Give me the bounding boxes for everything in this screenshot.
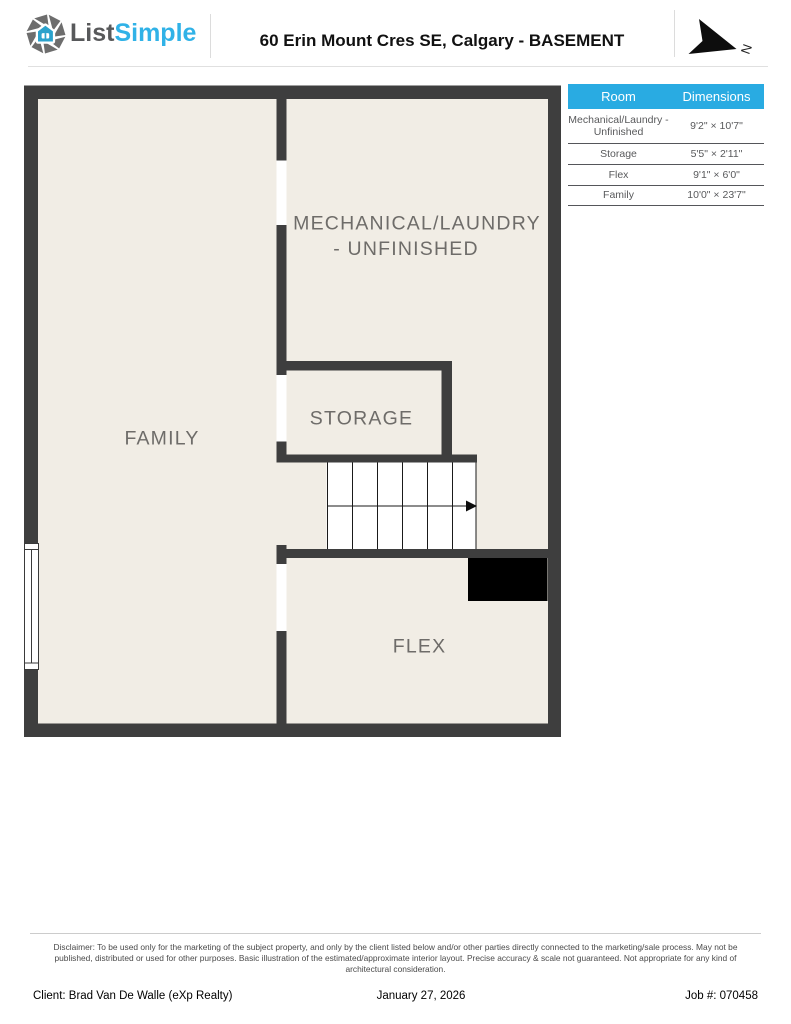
svg-text:MECHANICAL/LAUNDRY: MECHANICAL/LAUNDRY bbox=[293, 213, 541, 235]
svg-text:FAMILY: FAMILY bbox=[124, 428, 199, 450]
svg-text:- UNFINISHED: - UNFINISHED bbox=[333, 238, 478, 260]
svg-text:STORAGE: STORAGE bbox=[310, 408, 413, 430]
svg-text:FLEX: FLEX bbox=[393, 636, 447, 658]
